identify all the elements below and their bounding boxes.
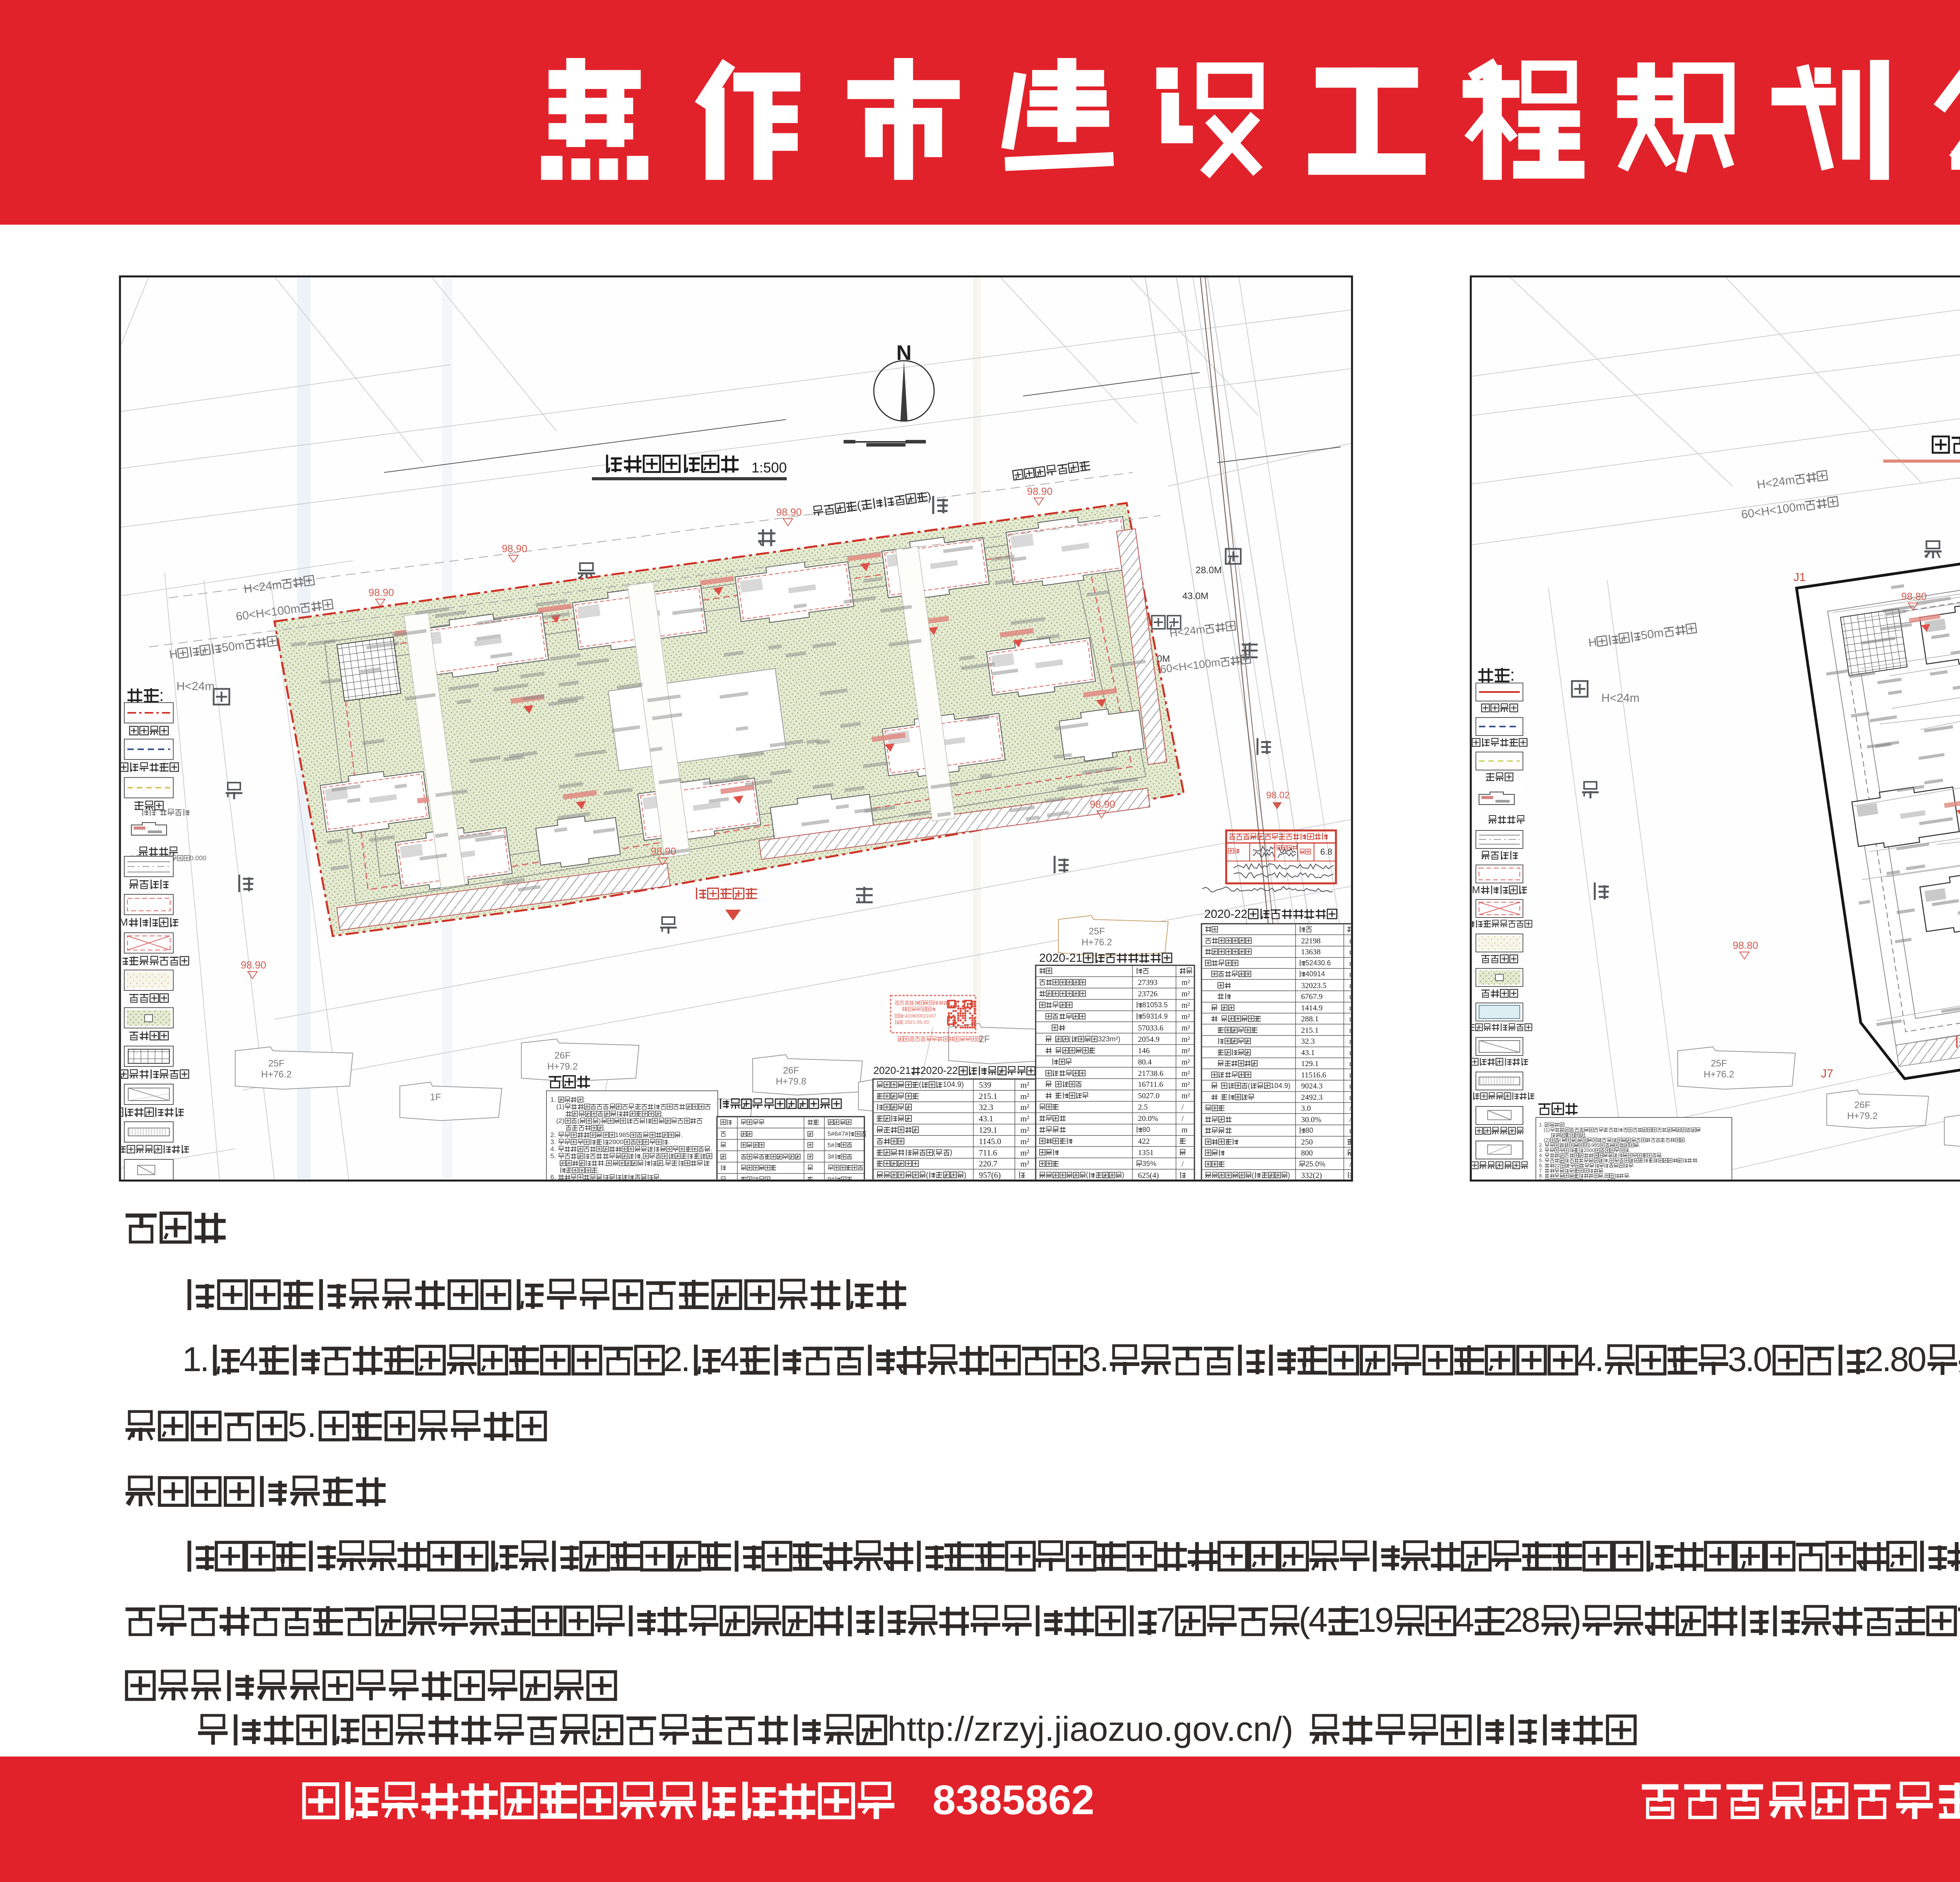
svg-text:H+79.8: H+79.8 — [776, 1076, 806, 1087]
svg-text:;: ; — [1584, 1132, 1586, 1138]
svg-text:32023.5: 32023.5 — [1301, 981, 1327, 990]
svg-text:22: 22 — [1554, 1163, 1560, 1168]
svg-text:2000: 2000 — [1584, 1147, 1595, 1153]
svg-text:H+76.2: H+76.2 — [261, 1069, 292, 1080]
svg-text:80.4: 80.4 — [1138, 1058, 1152, 1066]
svg-text:H+76.2: H+76.2 — [1704, 1069, 1734, 1080]
svg-text:m²: m² — [1181, 1035, 1190, 1044]
svg-text:): ) — [1576, 1137, 1577, 1143]
svg-text:711.6: 711.6 — [979, 1148, 997, 1157]
svg-text:m²: m² — [1181, 1058, 1190, 1066]
svg-text:(: ( — [1086, 1171, 1088, 1179]
svg-text:.: . — [1684, 1137, 1686, 1143]
svg-text:,: , — [641, 1152, 642, 1160]
svg-text:98.90: 98.90 — [1090, 798, 1115, 810]
svg-text:19: 19 — [1357, 1600, 1392, 1639]
svg-text:): ) — [1288, 1171, 1290, 1179]
svg-text:m²: m² — [1181, 1069, 1190, 1078]
svg-text:98.90: 98.90 — [1027, 485, 1053, 497]
svg-text:2.: 2. — [550, 1131, 556, 1139]
svg-text:/: / — [1181, 1160, 1184, 1168]
svg-text:(: ( — [1559, 1137, 1561, 1143]
svg-text:1985: 1985 — [615, 1131, 630, 1139]
svg-text:2020-21: 2020-21 — [873, 1065, 911, 1076]
svg-text:m²: m² — [1181, 990, 1190, 998]
svg-text:43.0M: 43.0M — [1182, 591, 1209, 601]
svg-text:4: 4 — [239, 1340, 258, 1379]
svg-text:27393: 27393 — [1138, 978, 1158, 987]
svg-text:98.90: 98.90 — [651, 845, 676, 857]
svg-text:H: H — [169, 647, 179, 661]
svg-text:): ) — [1570, 1600, 1580, 1639]
svg-text:5#: 5# — [828, 1142, 835, 1149]
svg-text:220.7: 220.7 — [979, 1159, 997, 1168]
svg-text:7: 7 — [1156, 1600, 1174, 1639]
svg-text:21738.6: 21738.6 — [1138, 1069, 1163, 1078]
svg-text:N: N — [897, 341, 912, 365]
svg-text::: : — [159, 686, 164, 705]
svg-text:.: . — [681, 1131, 683, 1139]
svg-text:(4: (4 — [1299, 1600, 1327, 1639]
svg-text:(: ( — [1069, 1035, 1071, 1043]
svg-text:/: / — [1181, 1114, 1184, 1123]
svg-text:1414.9: 1414.9 — [1301, 1004, 1323, 1012]
svg-text:104.9): 104.9) — [1270, 1082, 1290, 1090]
svg-text:28: 28 — [1504, 1600, 1539, 1639]
svg-text:215.1: 215.1 — [1301, 1026, 1319, 1035]
svg-text:m²: m² — [1181, 1046, 1190, 1055]
svg-text:625(4): 625(4) — [1138, 1171, 1159, 1180]
svg-text:H: H — [1588, 636, 1598, 650]
svg-text:2.: 2. — [663, 1340, 689, 1379]
svg-text:,: , — [1608, 1157, 1610, 1163]
svg-text:98.90: 98.90 — [776, 506, 802, 518]
svg-text:23726: 23726 — [1138, 990, 1158, 998]
svg-text:m²: m² — [1181, 1024, 1190, 1032]
svg-text:104.9): 104.9) — [943, 1081, 964, 1089]
svg-text:m²: m² — [1020, 1148, 1029, 1157]
svg-text::2021-05-20: :2021-05-20 — [904, 1019, 929, 1025]
svg-text:.: . — [1661, 1152, 1663, 1158]
svg-text:,: , — [663, 1159, 665, 1167]
svg-text:.: . — [668, 1138, 670, 1146]
svg-text:2492.3: 2492.3 — [1301, 1093, 1323, 1102]
svg-text:59314.9: 59314.9 — [1142, 1012, 1168, 1020]
svg-text:1.: 1. — [1539, 1122, 1543, 1128]
svg-text::: : — [1510, 665, 1515, 685]
svg-text::410800021007: :410800021007 — [904, 1013, 936, 1019]
svg-text:(: ( — [933, 1148, 936, 1157]
svg-text:1F: 1F — [430, 1092, 441, 1103]
svg-text:25F: 25F — [1711, 1058, 1727, 1069]
svg-text:35%: 35% — [1142, 1160, 1156, 1168]
svg-text:6.8: 6.8 — [1320, 847, 1332, 857]
svg-text:4.: 4. — [550, 1145, 556, 1153]
svg-text:H<24m: H<24m — [1601, 692, 1640, 705]
svg-text:98.80: 98.80 — [1901, 590, 1927, 602]
svg-text:3.0: 3.0 — [1728, 1340, 1771, 1379]
svg-text:43.1: 43.1 — [979, 1114, 993, 1123]
svg-text:m²: m² — [1020, 1114, 1029, 1123]
svg-text:http://zrzyj.jiaozuo.gov.cn/): http://zrzyj.jiaozuo.gov.cn/) — [887, 1709, 1293, 1748]
svg-text:m²: m² — [1181, 1001, 1190, 1010]
svg-text:m²: m² — [1020, 1125, 1029, 1135]
svg-text:323m²): 323m²) — [1098, 1035, 1120, 1043]
svg-text:25.0%: 25.0% — [1305, 1160, 1325, 1168]
svg-text:3.: 3. — [1082, 1340, 1107, 1379]
svg-text:(: ( — [577, 1117, 580, 1124]
svg-text:80: 80 — [1142, 1126, 1150, 1134]
svg-text:5#6#7#: 5#6#7# — [828, 1131, 848, 1137]
svg-text:16711.6: 16711.6 — [1138, 1080, 1163, 1089]
svg-text:m²: m² — [1181, 978, 1190, 987]
svg-text:2020-21: 2020-21 — [1039, 952, 1082, 965]
svg-text:m²: m² — [1020, 1092, 1029, 1101]
svg-text:1145.0: 1145.0 — [979, 1137, 1001, 1146]
svg-text:(1): (1) — [556, 1103, 564, 1110]
svg-text:): ) — [950, 1148, 952, 1157]
svg-text:(: ( — [1248, 1082, 1250, 1090]
svg-text:H<24m: H<24m — [176, 680, 215, 693]
svg-text:5.: 5. — [550, 1152, 556, 1160]
svg-text:800: 800 — [1301, 1149, 1313, 1157]
svg-text:m: m — [1181, 1126, 1188, 1134]
svg-text:332(2): 332(2) — [1301, 1171, 1322, 1180]
svg-text:26F: 26F — [1854, 1100, 1870, 1110]
svg-text:25F: 25F — [1089, 926, 1105, 937]
svg-text:.: . — [1639, 1142, 1640, 1148]
svg-text:J1: J1 — [1793, 571, 1806, 584]
svg-text:2F: 2F — [979, 1034, 990, 1045]
svg-text:(: ( — [919, 1081, 922, 1089]
svg-text:.: . — [1633, 1163, 1635, 1168]
svg-text:98.80: 98.80 — [1733, 939, 1758, 951]
svg-text:): ) — [599, 1117, 601, 1124]
svg-text:32.3: 32.3 — [979, 1103, 993, 1112]
svg-text:25F: 25F — [268, 1058, 284, 1069]
svg-text:30.0%: 30.0% — [1301, 1115, 1321, 1124]
svg-text:.: . — [711, 1145, 713, 1153]
svg-text:40914: 40914 — [1305, 970, 1325, 978]
svg-text:13638: 13638 — [1301, 948, 1321, 956]
svg-text:9024.3: 9024.3 — [1301, 1082, 1323, 1090]
svg-text:m²: m² — [1181, 1012, 1190, 1021]
svg-text:): ) — [964, 1171, 966, 1179]
svg-text:m²: m² — [1020, 1103, 1029, 1112]
svg-text:.: . — [1629, 1173, 1630, 1179]
svg-text:43.1: 43.1 — [1301, 1048, 1315, 1057]
svg-text:.: . — [604, 1124, 606, 1132]
svg-text:98.02: 98.02 — [1266, 790, 1290, 801]
svg-text:3.0: 3.0 — [1301, 1104, 1311, 1113]
svg-text:957(6): 957(6) — [979, 1170, 1001, 1180]
svg-text:.: . — [597, 1166, 599, 1174]
svg-text:m²: m² — [1020, 1137, 1029, 1146]
svg-text:.: . — [1697, 1157, 1699, 1163]
svg-text:,: , — [604, 1159, 606, 1167]
svg-text:(1): (1) — [1544, 1127, 1550, 1133]
svg-text:2000: 2000 — [609, 1138, 624, 1146]
svg-text:80: 80 — [1305, 1126, 1313, 1134]
svg-text:250: 250 — [1301, 1138, 1313, 1146]
svg-text:m²: m² — [1020, 1159, 1029, 1168]
svg-text:m²: m² — [1020, 1080, 1029, 1090]
svg-text:H+79.2: H+79.2 — [547, 1061, 578, 1072]
svg-text:H+79.2: H+79.2 — [1847, 1111, 1878, 1121]
svg-text::: : — [1564, 1122, 1566, 1128]
svg-text:3.: 3. — [550, 1138, 556, 1146]
svg-text:2.80: 2.80 — [1864, 1340, 1926, 1379]
svg-text:2020-22: 2020-22 — [920, 1065, 958, 1076]
svg-text:129.1: 129.1 — [979, 1125, 997, 1135]
svg-text:98.90: 98.90 — [241, 959, 266, 971]
svg-text:2.5: 2.5 — [1138, 1103, 1148, 1112]
svg-text:J7: J7 — [1821, 1067, 1833, 1080]
svg-text:81053.5: 81053.5 — [1142, 1001, 1168, 1009]
svg-text:1351: 1351 — [1138, 1148, 1154, 1157]
svg-text:146: 146 — [1138, 1046, 1150, 1055]
svg-text:11516.6: 11516.6 — [1301, 1071, 1326, 1079]
svg-text:0.000: 0.000 — [190, 854, 207, 862]
svg-text:98.90: 98.90 — [368, 587, 394, 598]
svg-text:129.1: 129.1 — [1301, 1059, 1319, 1068]
svg-text:;: ; — [661, 1110, 663, 1117]
svg-text:m²: m² — [1181, 1092, 1190, 1100]
svg-text:.: . — [1629, 1147, 1631, 1153]
svg-text:4: 4 — [720, 1340, 739, 1379]
svg-text:(: ( — [1252, 1171, 1254, 1179]
svg-text:5.: 5. — [288, 1406, 316, 1444]
svg-text:6767.9: 6767.9 — [1301, 992, 1323, 1001]
svg-text:2054.9: 2054.9 — [1138, 1035, 1160, 1044]
svg-text:m²: m² — [1181, 1080, 1190, 1089]
svg-text:3#: 3# — [828, 1154, 835, 1160]
svg-text:1:500: 1:500 — [751, 460, 787, 476]
svg-text:26F: 26F — [554, 1050, 570, 1061]
svg-text:539: 539 — [979, 1080, 991, 1090]
svg-text:52430.6: 52430.6 — [1305, 959, 1331, 967]
svg-text:(2): (2) — [1544, 1137, 1550, 1143]
svg-text:22198: 22198 — [1301, 937, 1321, 945]
svg-text:1.: 1. — [550, 1096, 556, 1103]
svg-text:4: 4 — [1455, 1600, 1474, 1639]
svg-text:26F: 26F — [783, 1065, 799, 1076]
svg-text:288.1: 288.1 — [1301, 1015, 1319, 1023]
svg-text:98.90: 98.90 — [502, 543, 527, 554]
svg-text:(: ( — [926, 1171, 929, 1179]
svg-text:5027.0: 5027.0 — [1138, 1092, 1160, 1100]
svg-text::: : — [583, 1096, 585, 1103]
svg-text:/: / — [1181, 1103, 1184, 1112]
svg-text:2020-22: 2020-22 — [1204, 908, 1247, 921]
svg-text:(2): (2) — [556, 1117, 564, 1124]
svg-text:20.0%: 20.0% — [1138, 1114, 1158, 1123]
svg-text:8385862: 8385862 — [933, 1777, 1094, 1823]
svg-text:422: 422 — [1138, 1137, 1150, 1146]
svg-text:32.3: 32.3 — [1301, 1037, 1315, 1046]
svg-text:4.: 4. — [1577, 1340, 1602, 1379]
svg-text:28.0M: 28.0M — [1196, 565, 1222, 576]
svg-text:215.1: 215.1 — [979, 1092, 997, 1101]
svg-text:1.: 1. — [182, 1340, 208, 1379]
svg-text:H+76.2: H+76.2 — [1082, 937, 1112, 948]
svg-text:): ) — [1122, 1171, 1124, 1179]
svg-text:57033.6: 57033.6 — [1138, 1024, 1163, 1032]
